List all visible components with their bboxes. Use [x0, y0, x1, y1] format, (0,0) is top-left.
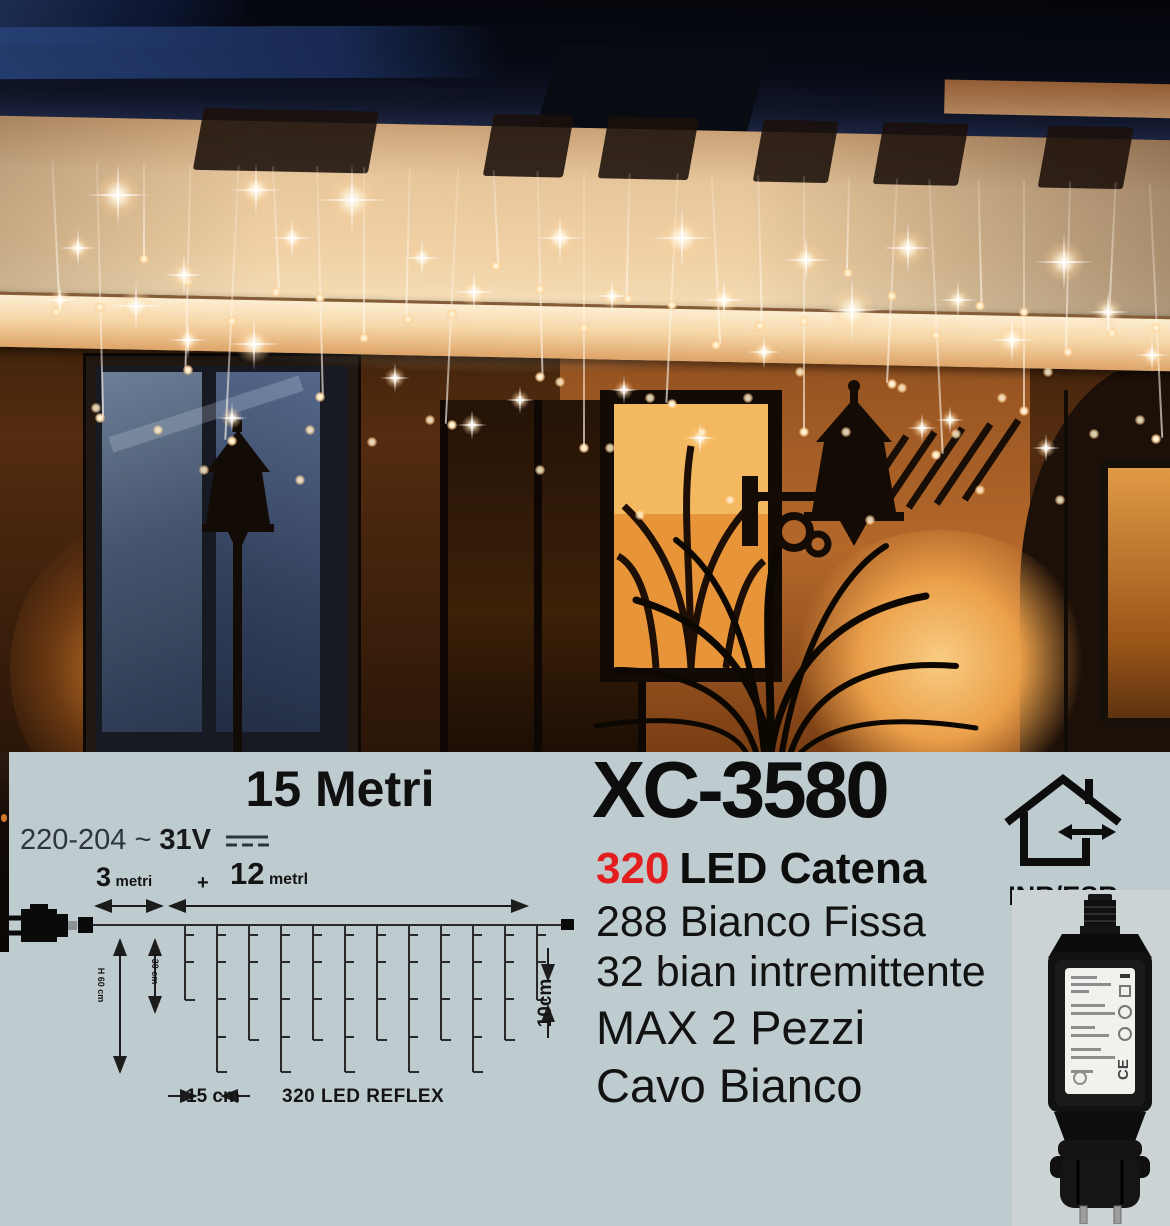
- led-bulb: [305, 425, 315, 435]
- light-strand: [803, 176, 805, 431]
- light-strand: [886, 178, 898, 383]
- height-short-label: H 30 cm: [150, 932, 160, 1002]
- light-sparkle: [750, 338, 778, 366]
- light-sparkle: [457, 275, 491, 309]
- led-bulb: [95, 413, 105, 423]
- led-bulb: [295, 475, 305, 485]
- light-strand: [405, 168, 411, 318]
- plug-icon: [6, 904, 93, 942]
- led-bulb: [931, 330, 941, 340]
- led-count-line: 320LED Catena: [596, 844, 926, 894]
- led-bulb: [95, 302, 105, 312]
- product-code: XC-3580: [592, 744, 887, 836]
- led-bulb: [315, 293, 325, 303]
- spec-line-2: 32 bian intremittente: [596, 948, 986, 997]
- led-bulb: [447, 309, 457, 319]
- led-bulb: [605, 443, 615, 453]
- led-bulb: [1019, 307, 1029, 317]
- segment1-label: 3 metri: [96, 862, 152, 893]
- led-note-label: 320 LED REFLEX: [282, 1086, 444, 1108]
- light-sparkle: [707, 283, 741, 317]
- light-strand: [977, 180, 982, 305]
- light-strand: [757, 175, 763, 325]
- led-bulb: [799, 316, 809, 326]
- led-bulb: [555, 377, 565, 387]
- led-bulb: [887, 379, 897, 389]
- led-bulb: [951, 429, 961, 439]
- light-sparkle: [383, 366, 407, 390]
- light-sparkle: [910, 416, 934, 440]
- led-bulb: [667, 399, 677, 409]
- led-bulb: [491, 261, 501, 271]
- product-photo: [0, 0, 1170, 752]
- light-sparkle: [235, 169, 277, 211]
- led-bulb: [1151, 323, 1161, 333]
- led-bulb: [227, 316, 237, 326]
- light-sparkle: [275, 221, 309, 255]
- light-strand: [625, 173, 630, 298]
- led-bulb: [315, 392, 325, 402]
- led-bulb: [447, 420, 457, 430]
- segment1-value: 3: [96, 862, 111, 892]
- led-bulb: [403, 314, 413, 324]
- voltage-prefix: 220-204 ~: [20, 824, 151, 857]
- led-bulb: [975, 301, 985, 311]
- spec-line-3: MAX 2 Pezzi: [596, 1000, 865, 1055]
- light-sparkle: [598, 282, 626, 310]
- led-bulb: [897, 383, 907, 393]
- led-bulb: [579, 443, 589, 453]
- led-bulb: [227, 436, 237, 446]
- svg-text:CE: CE: [1115, 1059, 1132, 1080]
- led-bulb: [1151, 434, 1161, 444]
- segment2-unit: metrl: [269, 871, 308, 888]
- led-bulb: [1135, 415, 1145, 425]
- led-bulb: [1089, 429, 1099, 439]
- led-bulb: [359, 333, 369, 343]
- light-sparkle: [407, 243, 437, 273]
- icicle-lights-curtain: [0, 0, 1170, 752]
- light-sparkle: [232, 322, 276, 366]
- led-type: LED Catena: [679, 844, 926, 893]
- spacing-label: 15 cm: [186, 1086, 240, 1108]
- led-bulb: [645, 393, 655, 403]
- dc-symbol-icon: [225, 833, 271, 849]
- led-bulb: [975, 485, 985, 495]
- led-bulb: [865, 515, 875, 525]
- led-bulb: [1063, 347, 1073, 357]
- led-drops: [185, 925, 547, 1072]
- light-sparkle: [323, 171, 381, 229]
- light-sparkle: [825, 283, 879, 337]
- led-bulb: [743, 393, 753, 403]
- height-long-label: H 60 cm: [96, 950, 106, 1020]
- led-bulb: [535, 465, 545, 475]
- light-strand: [536, 171, 543, 376]
- light-sparkle: [1138, 341, 1166, 369]
- spec-panel: 15 Metri 220-204 ~ 31V: [0, 752, 1170, 1226]
- light-strand: [1023, 180, 1025, 410]
- light-strand: [143, 163, 145, 258]
- spec-line-4: Cavo Bianco: [596, 1058, 863, 1113]
- led-bulb: [711, 340, 721, 350]
- light-sparkle: [116, 286, 156, 326]
- led-bulb: [1055, 495, 1065, 505]
- light-sparkle: [460, 413, 484, 437]
- light-strand: [846, 177, 850, 272]
- led-bulb: [931, 450, 941, 460]
- light-sparkle: [91, 168, 145, 222]
- led-bulb: [799, 427, 809, 437]
- light-sparkle: [1040, 238, 1088, 286]
- led-bulb: [755, 321, 765, 331]
- led-bulb: [153, 425, 163, 435]
- led-bulb: [997, 393, 1007, 403]
- led-bulb: [425, 415, 435, 425]
- led-bulb: [887, 291, 897, 301]
- led-bulb: [841, 427, 851, 437]
- segment1-unit: metri: [115, 873, 152, 890]
- length-title: 15 Metri: [170, 760, 510, 818]
- light-sparkle: [613, 379, 635, 401]
- light-strand: [224, 165, 239, 440]
- segment2-value: 12: [230, 856, 264, 891]
- led-bulb: [579, 323, 589, 333]
- led-bulb: [635, 510, 645, 520]
- light-strand: [1149, 183, 1163, 438]
- segment2-label: 12 metrl: [230, 856, 308, 892]
- light-sparkle: [887, 227, 929, 269]
- light-sparkle: [939, 409, 961, 431]
- light-sparkle: [220, 406, 244, 430]
- led-bulb: [367, 437, 377, 447]
- led-bulb: [667, 300, 677, 310]
- indoor-outdoor-house-icon: [1004, 770, 1122, 874]
- spec-line-1: 288 Bianco Fissa: [596, 898, 926, 947]
- led-bulb: [271, 287, 281, 297]
- led-bulb: [139, 254, 149, 264]
- wire-end-cap: [561, 919, 574, 930]
- light-sparkle: [1035, 437, 1057, 459]
- light-strand: [493, 170, 500, 265]
- plus-sign: +: [197, 872, 209, 895]
- light-sparkle: [656, 212, 708, 264]
- led-bulb: [697, 427, 707, 437]
- led-bulb: [795, 367, 805, 377]
- led-count: 320: [596, 844, 669, 893]
- light-sparkle: [787, 241, 825, 279]
- led-bulb: [91, 403, 101, 413]
- led-bulb: [183, 365, 193, 375]
- led-bulb: [535, 372, 545, 382]
- light-sparkle: [173, 325, 203, 355]
- light-sparkle: [993, 321, 1031, 359]
- light-sparkle: [509, 389, 531, 411]
- end-gap-label: 10cm: [535, 973, 557, 1033]
- led-bulb: [535, 284, 545, 294]
- led-bulb: [199, 465, 209, 475]
- light-strand: [583, 172, 585, 447]
- light-strand: [665, 173, 678, 403]
- voltage-line: 220-204 ~ 31V: [20, 824, 271, 857]
- light-sparkle: [47, 287, 73, 313]
- light-strand: [711, 174, 721, 344]
- power-adapter-image: CE: [1036, 894, 1166, 1224]
- light-sparkle: [1091, 295, 1125, 329]
- light-sparkle: [943, 285, 973, 315]
- light-sparkle: [540, 218, 580, 258]
- led-bulb: [1043, 367, 1053, 377]
- led-bulb: [1019, 406, 1029, 416]
- light-sparkle: [167, 258, 201, 292]
- led-bulb: [725, 495, 735, 505]
- product-sheet: 15 Metri 220-204 ~ 31V: [0, 0, 1170, 1226]
- light-sparkle: [63, 233, 93, 263]
- voltage-value: 31V: [159, 824, 211, 857]
